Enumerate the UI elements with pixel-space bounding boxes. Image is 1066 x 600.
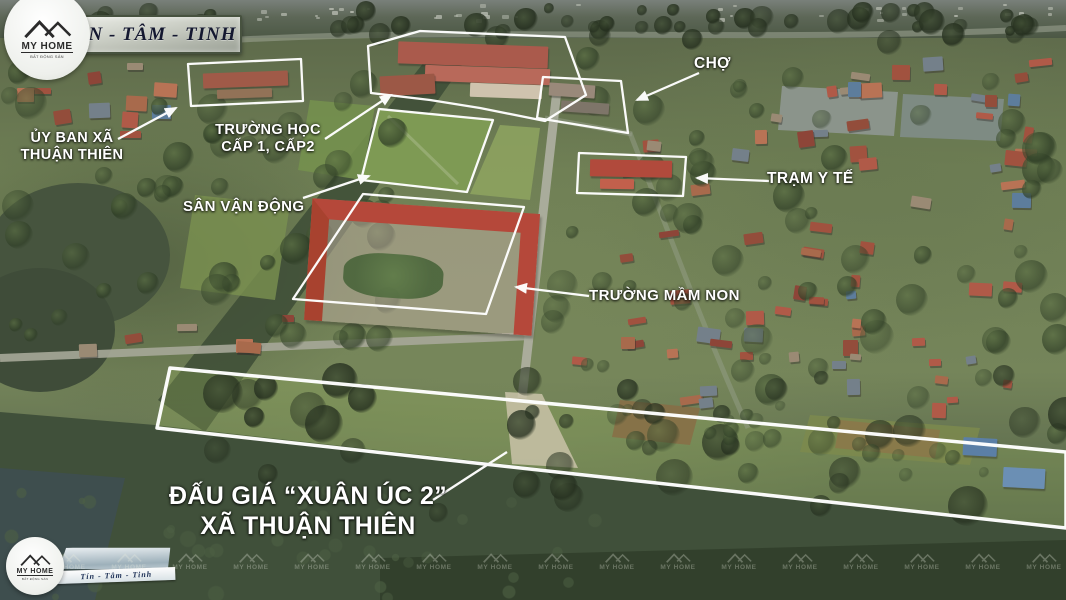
watermark-item: MY HOME — [955, 551, 1011, 571]
watermark-item: MY HOME — [650, 551, 706, 571]
watermark-item: MY HOME — [894, 551, 950, 571]
house-roof-icon — [22, 15, 72, 41]
house-roof-icon — [19, 551, 51, 568]
watermark-item: MY HOME — [223, 551, 279, 571]
aerial-site-map: ỦY BAN XÃ THUẬN THIÊN TRƯỜNG HỌC CẤP 1, … — [0, 0, 1066, 600]
watermark-item: MY HOME — [101, 551, 157, 571]
watermark-item: MY HOME — [711, 551, 767, 571]
watermark-item: MY HOME — [284, 551, 340, 571]
watermark-item: MY HOME — [528, 551, 584, 571]
watermark-item: MY HOME — [162, 551, 218, 571]
watermark-item: MY HOME — [772, 551, 828, 571]
watermark-item: MY HOME — [833, 551, 889, 571]
watermark-item: MY HOME — [1016, 551, 1066, 571]
watermark-row: MY HOMEMY HOMEMY HOMEMY HOMEMY HOMEMY HO… — [0, 0, 1066, 600]
agency-name: MY HOME — [21, 41, 72, 53]
watermark-item: MY HOME — [406, 551, 462, 571]
watermark-item: MY HOME — [467, 551, 523, 571]
agency-tagline: BẤT ĐỘNG SẢN — [22, 577, 48, 581]
agency-logo-bottom: MY HOME BẤT ĐỘNG SẢN — [6, 537, 64, 595]
agency-tagline: BẤT ĐỘNG SẢN — [30, 54, 64, 59]
agency-name: MY HOME — [17, 568, 54, 577]
watermark-item: MY HOME — [589, 551, 645, 571]
watermark-item: MY HOME — [345, 551, 401, 571]
